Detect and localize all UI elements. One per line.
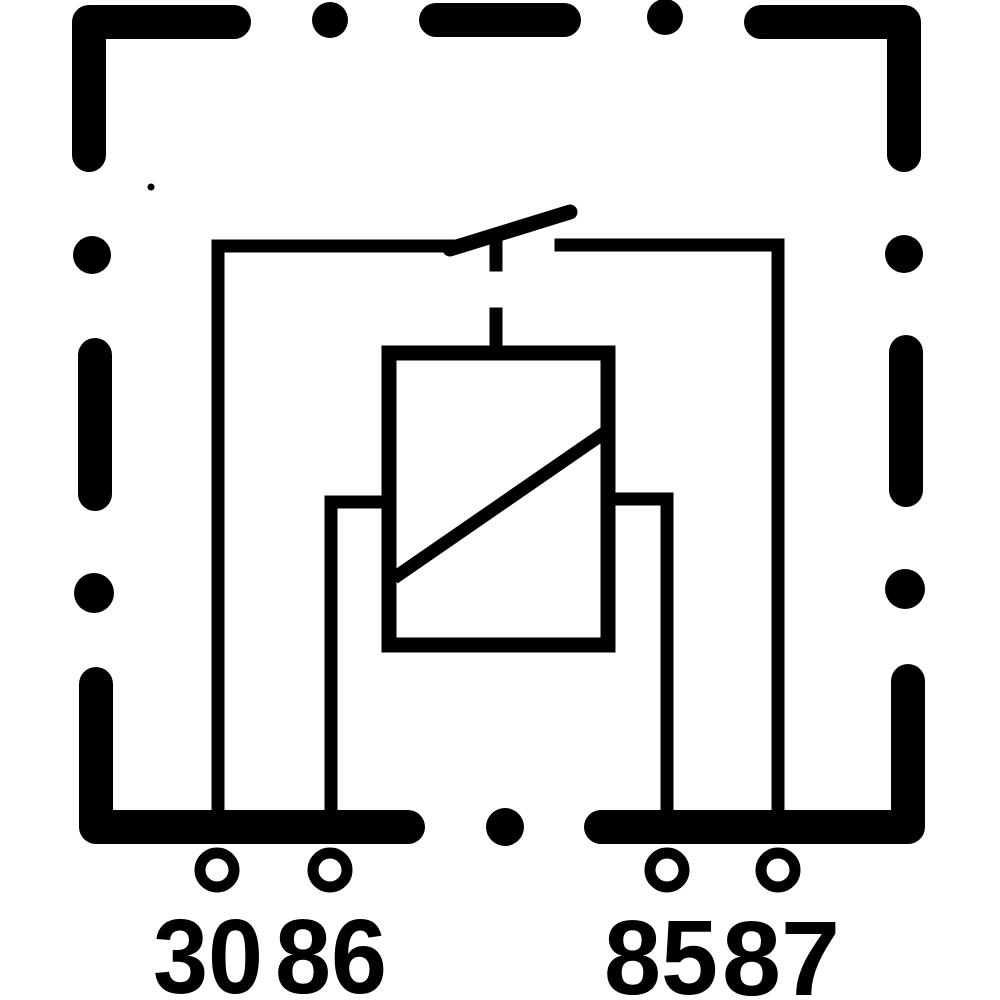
- svg-text:30: 30: [153, 898, 263, 1000]
- svg-text:86: 86: [275, 898, 387, 1000]
- svg-text:85: 85: [604, 899, 718, 1000]
- svg-text:87: 87: [722, 900, 840, 1000]
